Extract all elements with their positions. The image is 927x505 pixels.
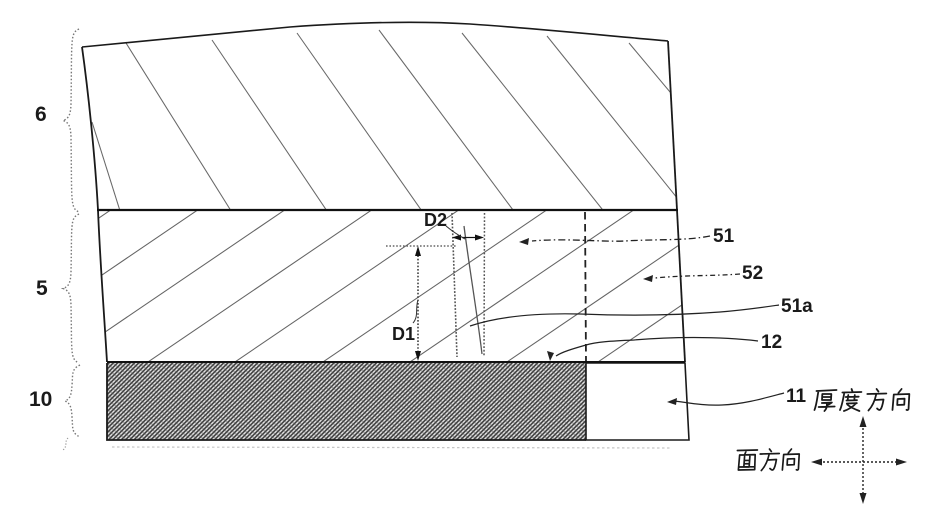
svg-text:D1: D1 [392,324,415,344]
svg-text:10: 10 [29,388,52,411]
svg-text:12: 12 [761,332,782,353]
svg-text:5: 5 [36,277,48,300]
svg-text:11: 11 [786,386,807,407]
svg-text:6: 6 [35,103,47,126]
svg-text:51a: 51a [781,296,813,317]
svg-text:51: 51 [713,226,735,247]
svg-text:52: 52 [742,263,763,284]
svg-text:D2: D2 [424,210,447,230]
